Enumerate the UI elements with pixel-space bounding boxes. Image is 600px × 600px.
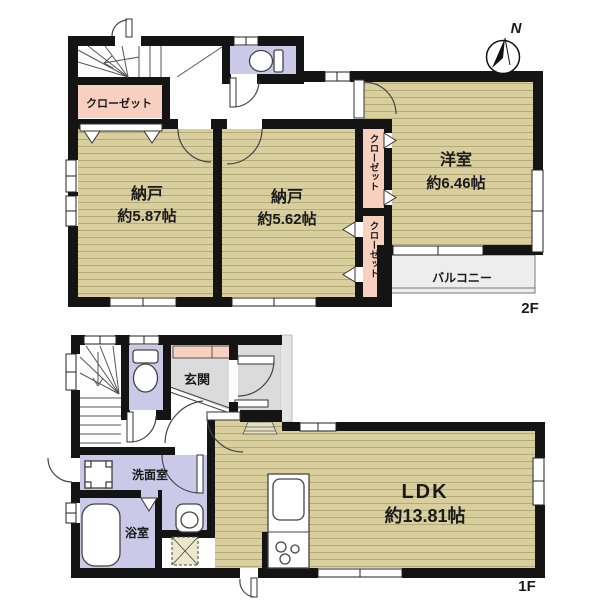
porch-side-slab: [280, 335, 292, 422]
washroom-label: 洗面室: [132, 467, 168, 482]
window: [66, 196, 76, 226]
balcony-sliding-window: [393, 246, 483, 255]
compass-north-label: N: [511, 20, 523, 37]
western-room-name: 洋室: [440, 150, 472, 169]
washbasin-icon: [176, 504, 203, 532]
window: [533, 458, 544, 505]
window: [232, 298, 316, 306]
kitchen-sink-icon: [273, 479, 304, 520]
window: [532, 170, 543, 252]
staircase-1f: [80, 346, 121, 443]
window: [66, 354, 76, 390]
ldk-name: LDK: [401, 481, 448, 503]
floorplan-page: クローゼット 納戸 約5.87帖 納戸 約5.62帖 洋室 約6.46帖 クロー…: [0, 0, 600, 600]
storage-b-name: 納戸: [271, 187, 303, 206]
window: [300, 423, 336, 431]
service-door: [48, 458, 72, 482]
window: [66, 503, 76, 523]
washing-machine-icon: [85, 461, 112, 488]
shoe-cabinet: [173, 346, 230, 358]
window: [110, 298, 176, 306]
stair-top-door: [112, 19, 132, 37]
closet-lower-label: クローゼット: [368, 221, 380, 278]
ldk-area: 約13.81帖: [384, 505, 465, 526]
toilet-door: [230, 78, 259, 107]
entrance-label: 玄関: [184, 372, 210, 387]
compass-icon: N: [487, 20, 523, 74]
storage-a-name: 納戸: [131, 184, 163, 203]
window: [318, 569, 402, 577]
window: [325, 72, 350, 81]
floorplan-canvas: クローゼット 納戸 約5.87帖 納戸 約5.62帖 洋室 約6.46帖 クロー…: [0, 0, 600, 600]
back-door: [240, 578, 257, 597]
toilet-icon-2f: [250, 50, 284, 72]
storage-a-area: 約5.87帖: [117, 207, 176, 225]
staircase-2f: [78, 46, 222, 77]
closet-upper-label: クローゼット: [368, 134, 380, 191]
floor-1f-label: 1F: [518, 578, 536, 595]
entrance-steps: [243, 422, 277, 434]
bathroom-label: 浴室: [125, 525, 149, 540]
floor-hatch-icon: [172, 537, 198, 565]
closet-left-label: クローゼット: [86, 96, 152, 110]
floor-1f: 玄関 洗面室 浴室 LDK 約13.81帖 1F: [48, 335, 545, 597]
window: [66, 160, 76, 192]
toilet-door-1f: [127, 412, 156, 442]
window: [84, 336, 116, 344]
window: [129, 336, 159, 344]
toilet-icon-1f: [133, 350, 158, 392]
window: [234, 37, 258, 45]
floor-2f-label: 2F: [521, 300, 539, 317]
floor-2f: クローゼット 納戸 約5.87帖 納戸 約5.62帖 洋室 約6.46帖 クロー…: [66, 19, 543, 317]
balcony-label: バルコニー: [432, 271, 492, 285]
bathtub-icon: [82, 504, 120, 566]
stair-direction-arrow: [104, 56, 139, 68]
storage-b-area: 約5.62帖: [257, 210, 316, 228]
kitchen-counter: [268, 474, 309, 568]
western-room-area: 約6.46帖: [426, 174, 485, 192]
